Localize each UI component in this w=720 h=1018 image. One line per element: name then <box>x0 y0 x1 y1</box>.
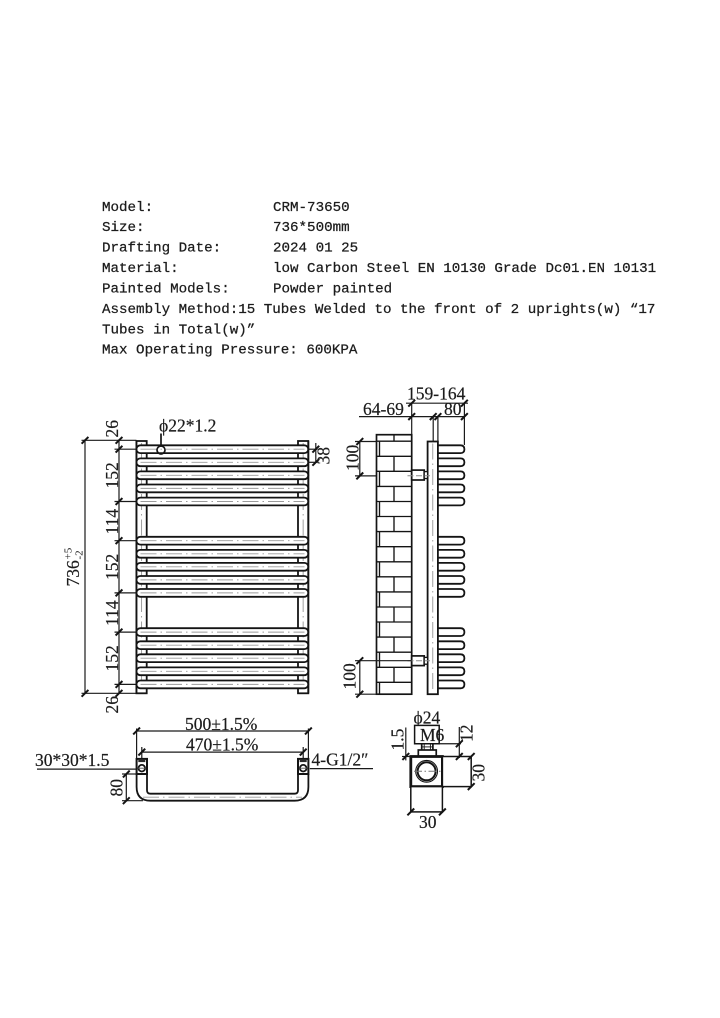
svg-text:500±1.5%: 500±1.5% <box>185 714 257 734</box>
svg-text:-2: -2 <box>74 550 86 559</box>
svg-text:2024 01 25: 2024 01 25 <box>273 241 358 257</box>
svg-text:4-G1/2″: 4-G1/2″ <box>312 749 369 769</box>
svg-text:100: 100 <box>343 445 363 472</box>
svg-text:ϕ22*1.2: ϕ22*1.2 <box>159 416 216 436</box>
svg-text:64-69: 64-69 <box>363 399 404 419</box>
svg-text:low Carbon Steel EN 10130 Grad: low Carbon Steel EN 10130 Grade Dc01.EN … <box>273 261 656 277</box>
svg-text:Max Operating Pressure: 600KPA: Max Operating Pressure: 600KPA <box>102 343 358 359</box>
svg-text:Drafting Date:: Drafting Date: <box>102 241 221 257</box>
svg-text:152: 152 <box>102 645 122 671</box>
svg-text:100: 100 <box>340 663 360 690</box>
svg-text:736*500mm: 736*500mm <box>273 220 350 236</box>
svg-text:736: 736 <box>63 560 83 587</box>
svg-text:1.5: 1.5 <box>388 728 408 750</box>
svg-text:Material:: Material: <box>102 261 179 277</box>
svg-text:Painted Models:: Painted Models: <box>102 281 230 297</box>
svg-text:Powder painted: Powder painted <box>273 281 392 297</box>
svg-text:26: 26 <box>102 696 122 714</box>
svg-text:Assembly Method:15 Tubes Welde: Assembly Method:15 Tubes Welded to the f… <box>102 302 655 318</box>
svg-text:152: 152 <box>102 462 122 488</box>
svg-text:38: 38 <box>314 447 334 465</box>
svg-text:26: 26 <box>102 420 122 438</box>
svg-text:152: 152 <box>102 554 122 580</box>
svg-text:Model:: Model: <box>102 200 153 216</box>
svg-text:30*30*1.5: 30*30*1.5 <box>35 750 110 770</box>
svg-text:80: 80 <box>444 399 462 419</box>
svg-text:114: 114 <box>102 509 122 535</box>
svg-text:114: 114 <box>102 600 122 626</box>
svg-text:CRM-73650: CRM-73650 <box>273 200 350 216</box>
svg-text:12: 12 <box>457 725 477 743</box>
svg-text:470±1.5%: 470±1.5% <box>186 734 258 754</box>
svg-text:Size:: Size: <box>102 220 145 236</box>
svg-text:M6: M6 <box>420 725 445 745</box>
svg-text:80: 80 <box>107 779 127 797</box>
svg-text:Tubes in Total(w)”: Tubes in Total(w)” <box>102 322 255 338</box>
svg-text:30: 30 <box>419 812 437 832</box>
svg-text:30: 30 <box>469 764 489 782</box>
